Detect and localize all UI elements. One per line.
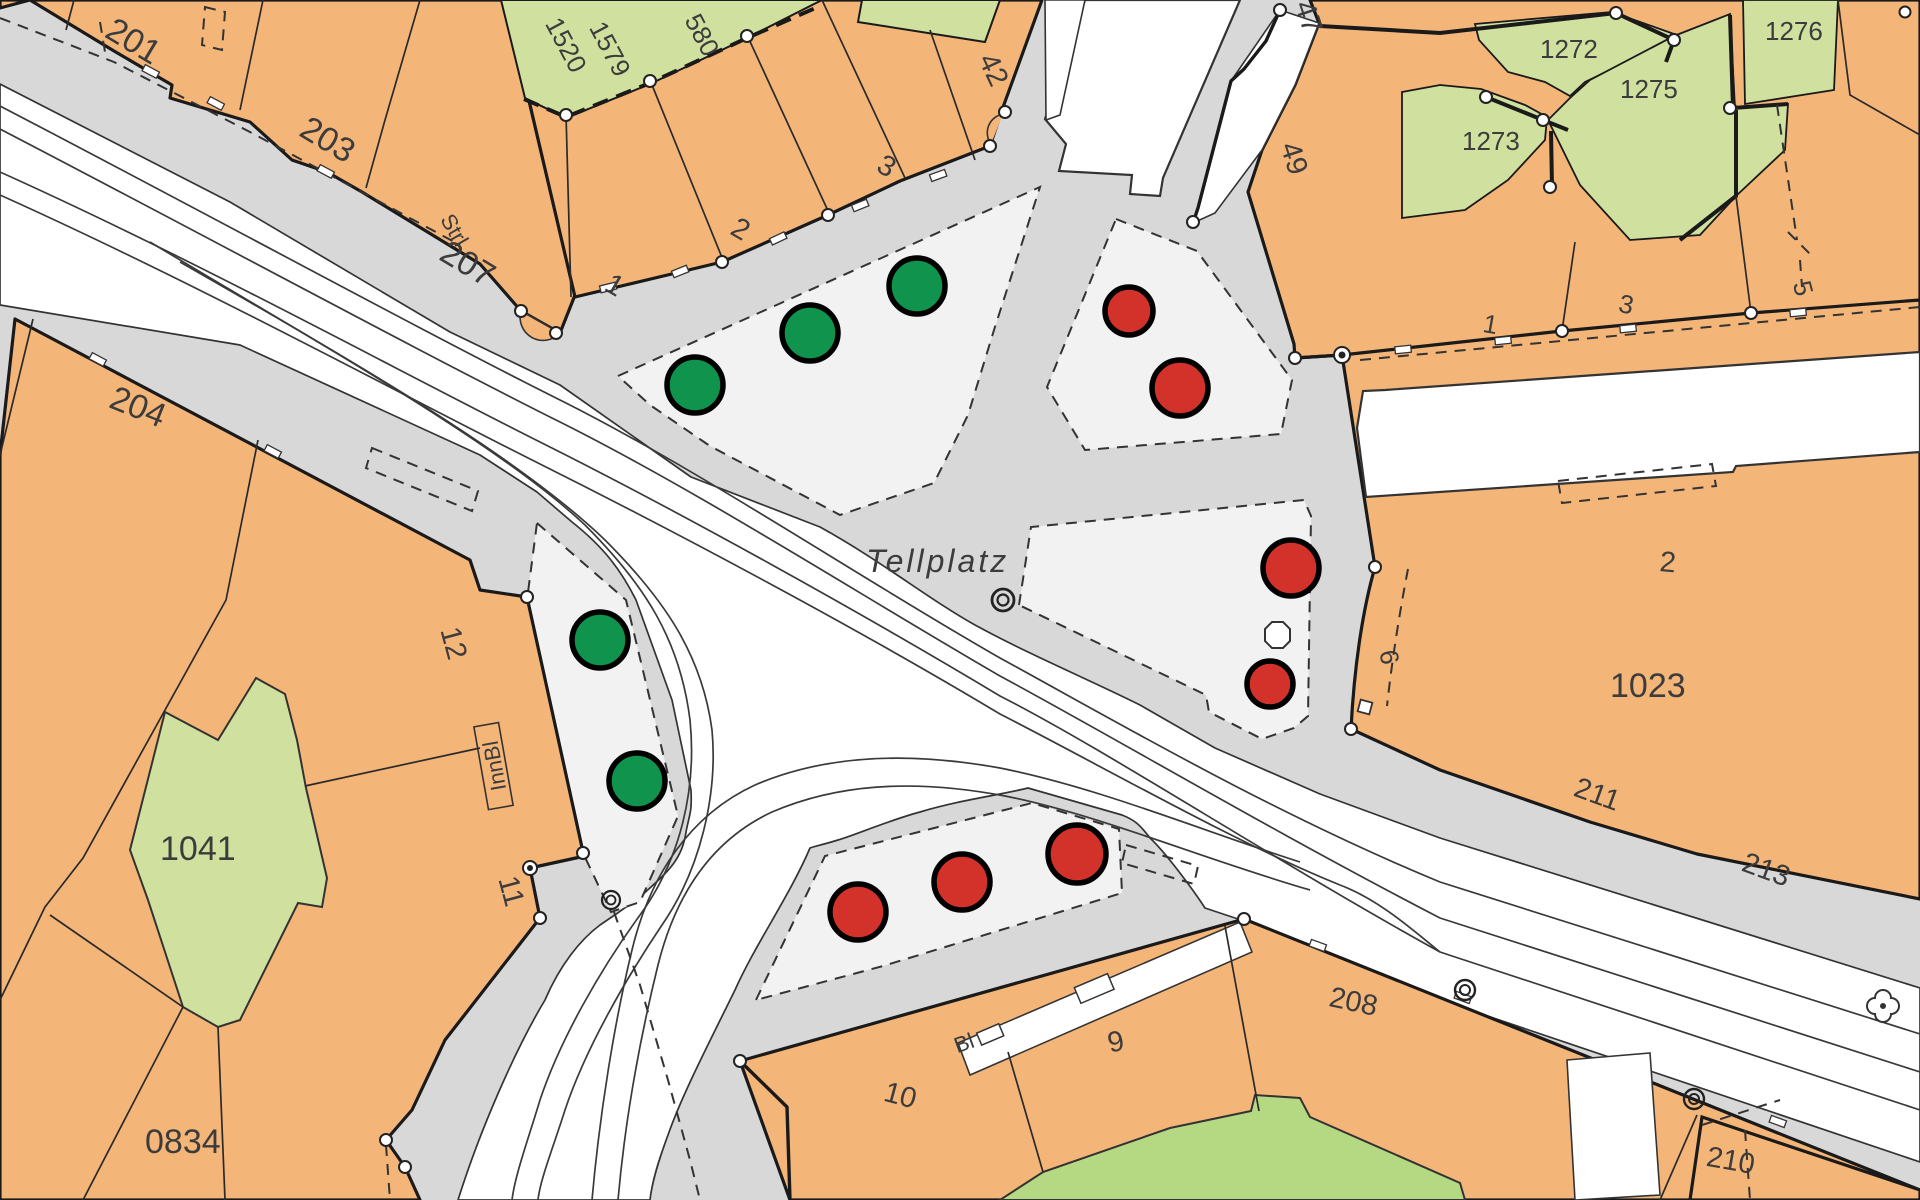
svg-text:2: 2 [1658,546,1677,579]
svg-text:1276: 1276 [1765,16,1823,46]
svg-text:1041: 1041 [160,830,236,868]
svg-text:0834: 0834 [145,1123,221,1161]
svg-text:Tellplatz: Tellplatz [866,543,1009,579]
svg-text:1273: 1273 [1462,126,1520,156]
svg-text:1275: 1275 [1620,74,1678,104]
svg-text:1272: 1272 [1540,34,1598,64]
svg-text:1023: 1023 [1610,667,1686,705]
